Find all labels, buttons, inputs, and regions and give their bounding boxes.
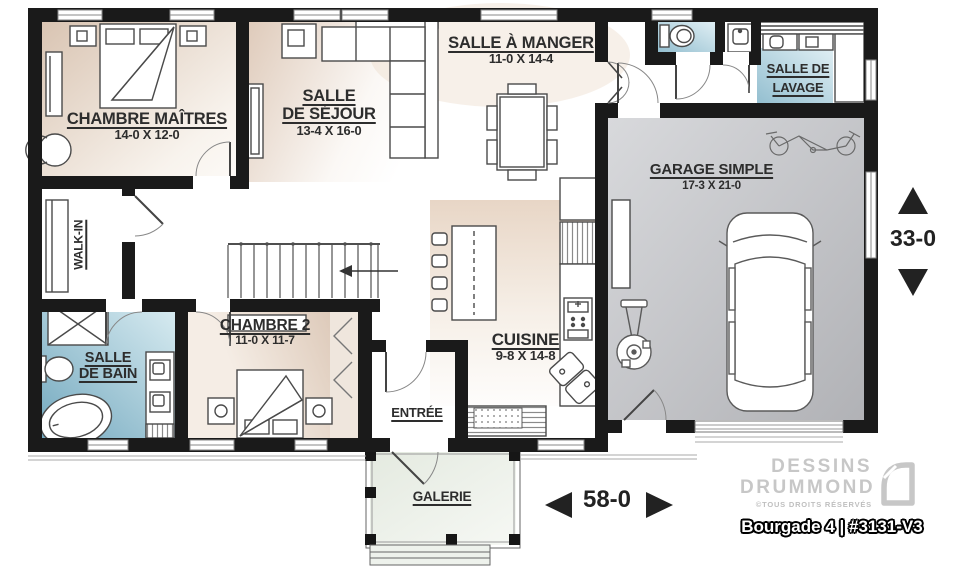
room-name: DE BAIN: [65, 366, 151, 382]
room-name: LAVAGE: [755, 79, 841, 98]
overall-depth-dimension: 33-0: [883, 225, 943, 252]
room-label-salle-de-sejour: SALLE DE SÉJOUR 13-4 X 16-0: [269, 87, 389, 138]
room-label-salle-de-bain: SALLE DE BAIN: [65, 350, 151, 382]
room-name: SALLE: [65, 350, 151, 366]
room-label-chambre-maitres: CHAMBRE MAÎTRES 14-0 X 12-0: [49, 110, 245, 143]
room-label-chambre-2: CHAMBRE 2 11-0 X 11-7: [206, 317, 324, 348]
room-size: 11-0 X 14-4: [437, 52, 605, 66]
room-name: SALLE À MANGER: [437, 34, 605, 52]
room-name: CHAMBRE MAÎTRES: [49, 110, 245, 128]
floor-plan-labels: CHAMBRE MAÎTRES 14-0 X 12-0 SALLE DE SÉJ…: [0, 0, 960, 569]
room-label-salle-a-manger: SALLE À MANGER 11-0 X 14-4: [437, 34, 605, 67]
floor-plan-page: CHAMBRE MAÎTRES 14-0 X 12-0 SALLE DE SÉJ…: [0, 0, 960, 569]
brand-rights: ©TOUS DROITS RÉSERVÉS: [740, 500, 872, 509]
room-label-cuisine: CUISINE 9-8 X 14-8: [463, 330, 588, 364]
room-label-garage: GARAGE SIMPLE 17-3 X 21-0: [644, 162, 779, 192]
room-size: 17-3 X 21-0: [644, 179, 779, 192]
room-name: DE SÉJOUR: [269, 105, 389, 123]
brand-name-line1: DESSINS: [740, 456, 872, 477]
plan-title: Bourgade 4 | #3131-V3: [727, 517, 937, 537]
room-label-salle-de-lavage: SALLE DE LAVAGE: [755, 60, 841, 98]
room-name: GARAGE SIMPLE: [644, 162, 779, 179]
room-size: 11-0 X 11-7: [206, 334, 324, 348]
room-size: 9-8 X 14-8: [463, 349, 588, 364]
room-size: 13-4 X 16-0: [269, 124, 389, 138]
room-label-entree: ENTRÉE: [377, 406, 457, 421]
brand-logo-text: DESSINS DRUMMOND ©TOUS DROITS RÉSERVÉS: [740, 456, 872, 509]
room-size: 14-0 X 12-0: [49, 128, 245, 142]
brand-name-line2: DRUMMOND: [740, 477, 872, 498]
room-name: CUISINE: [463, 330, 588, 349]
room-name: SALLE: [269, 87, 389, 105]
room-name: SALLE DE: [755, 60, 841, 79]
overall-width-dimension: 58-0: [570, 486, 644, 514]
room-label-galerie: GALERIE: [400, 489, 484, 504]
room-name: CHAMBRE 2: [206, 317, 324, 334]
room-label-walk-in: WALK-IN: [72, 195, 85, 295]
